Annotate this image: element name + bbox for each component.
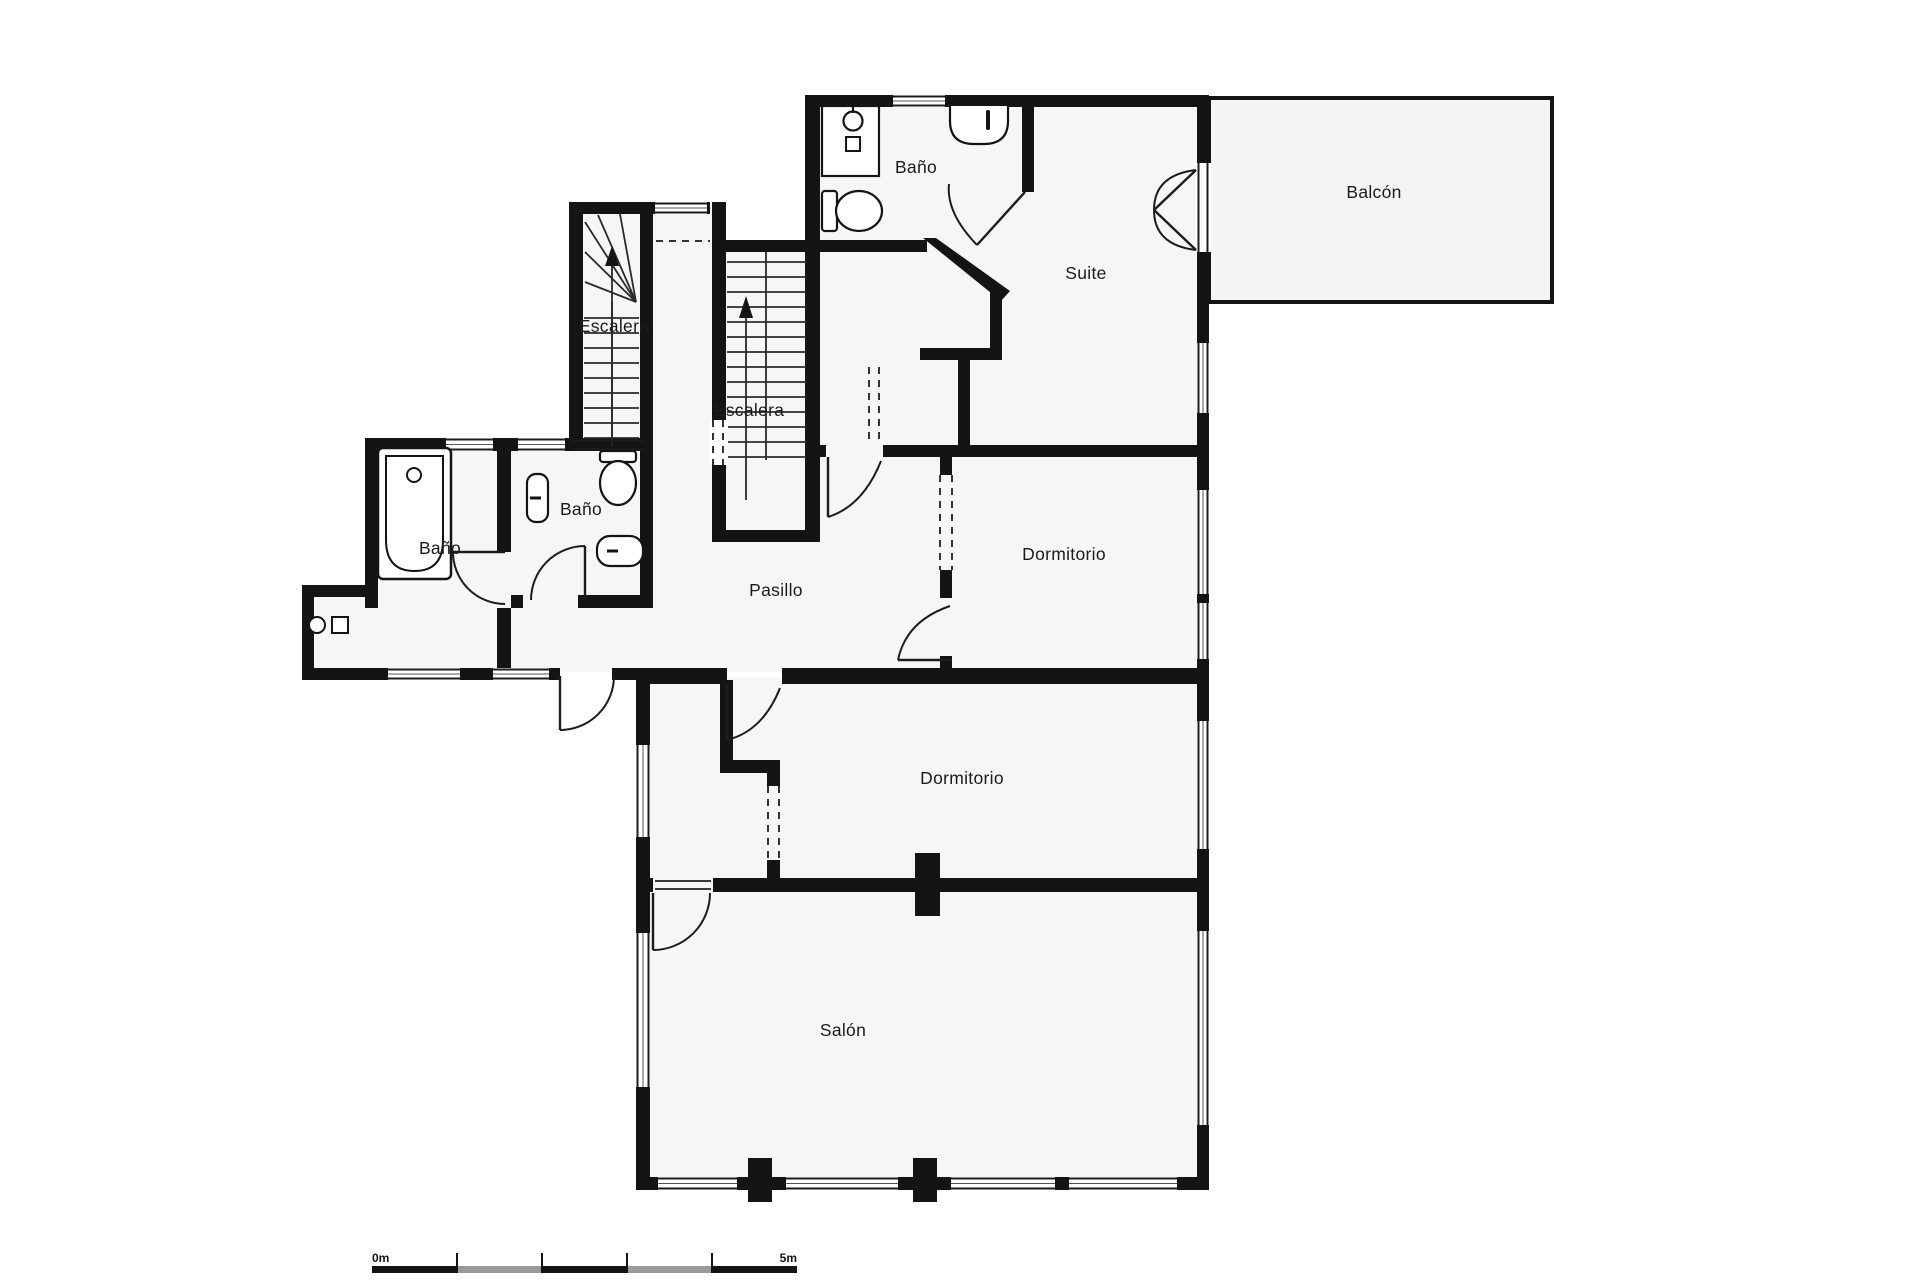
window-jamb — [460, 668, 463, 680]
sink-faucet-icon — [844, 112, 863, 131]
floor-plan-page: Baño Suite Balcón Escalera Escalera Baño… — [0, 0, 1920, 1280]
bidet-icon — [597, 536, 643, 566]
window-jamb — [1055, 1177, 1058, 1190]
wall-segment — [1022, 107, 1034, 192]
scale-zero-label: 0m — [372, 1251, 389, 1265]
room-floor — [946, 451, 1204, 678]
window-jamb — [515, 438, 518, 451]
wall-segment — [511, 595, 523, 608]
scale-segment — [627, 1266, 712, 1273]
window-jamb — [636, 837, 650, 840]
drain-square-icon — [846, 137, 860, 151]
scale-five-label: 5m — [780, 1251, 797, 1265]
toilet-tank-icon — [822, 191, 837, 231]
room-label-escalera-a: Escalera — [579, 316, 650, 336]
window-jamb — [655, 1177, 658, 1190]
window-jamb — [636, 1087, 650, 1090]
tub-drain-icon — [407, 468, 421, 482]
room-floor — [652, 215, 712, 672]
wall-segment — [712, 202, 726, 542]
wall-segment — [636, 878, 653, 892]
room-label-bano-middle: Baño — [560, 499, 602, 519]
window-jamb — [385, 668, 388, 680]
wall-segment — [920, 348, 1002, 360]
room-label-bano-top: Baño — [895, 157, 937, 177]
wall-segment — [820, 445, 826, 457]
wall-segment — [712, 530, 820, 542]
wall-segment — [365, 438, 378, 608]
wall-segment — [940, 570, 952, 598]
scale-segments — [372, 1253, 797, 1273]
wall-segment — [958, 360, 970, 450]
window-jamb — [1197, 600, 1209, 603]
wall-segment — [782, 668, 1197, 684]
wall-segment — [913, 1158, 937, 1202]
toilet-bowl-icon — [836, 191, 882, 231]
scale-tick — [456, 1253, 458, 1273]
window-jamb — [1197, 849, 1209, 852]
toilet-bowl-icon — [600, 461, 636, 505]
window-jamb — [1066, 1177, 1069, 1190]
room-label-pasillo: Pasillo — [749, 580, 803, 600]
wall-segment — [940, 457, 952, 475]
wall-segment — [569, 202, 652, 214]
room-label-escalera-b: Escalera — [714, 400, 785, 420]
floor-plan-canvas: Baño Suite Balcón Escalera Escalera Baño… — [0, 0, 1920, 1280]
room-label-dormitorio-2: Dormitorio — [920, 768, 1004, 788]
window-jamb — [636, 742, 650, 745]
window-jamb — [783, 1177, 786, 1190]
window-jamb — [1197, 594, 1209, 597]
wall-segment — [805, 95, 820, 535]
appliance-square-icon — [332, 617, 348, 633]
window-jamb — [945, 95, 948, 107]
scale-segment — [457, 1266, 542, 1273]
window-jamb — [1197, 928, 1209, 931]
room-label-balcon: Balcón — [1346, 182, 1401, 202]
wall-segment — [726, 240, 807, 252]
wall-segment — [640, 452, 653, 595]
scale-tick — [711, 1253, 713, 1273]
window-jamb — [1177, 1177, 1180, 1190]
scale-segment — [712, 1266, 797, 1273]
wall-segment — [578, 595, 653, 608]
wall-segment — [650, 668, 727, 684]
window-jamb — [1197, 1125, 1209, 1128]
window-jamb — [490, 668, 493, 680]
window-jamb — [737, 1177, 740, 1190]
door-swing-arc — [560, 676, 614, 730]
wall-segment — [805, 240, 927, 252]
wall-basin-icon — [950, 106, 1008, 144]
bathroom-tub-fixtures — [378, 448, 451, 579]
balcony-door-gap — [1195, 163, 1211, 252]
window-jamb — [1197, 659, 1209, 662]
wall-segment — [940, 656, 952, 668]
window-jamb — [948, 1177, 951, 1190]
window-jamb — [707, 202, 710, 214]
window-jamb — [549, 668, 552, 680]
wall-segment — [767, 760, 780, 786]
window-jamb — [652, 202, 655, 214]
scale-tick — [541, 1253, 543, 1273]
window-jamb — [1197, 340, 1209, 343]
boiler-circle-icon — [309, 617, 325, 633]
window-jamb — [565, 438, 568, 451]
wall-segment — [990, 291, 1002, 357]
window-jamb — [636, 930, 650, 933]
wall-segment — [497, 438, 511, 552]
room-label-salon: Salón — [820, 1020, 866, 1040]
window-jamb — [493, 438, 496, 451]
wall-segment — [748, 1158, 772, 1202]
scale-segment — [372, 1266, 457, 1273]
room-label-bano-tub: Baño — [419, 538, 461, 558]
room-label-dormitorio-1: Dormitorio — [1022, 544, 1106, 564]
window-jamb — [898, 1177, 901, 1190]
wall-segment — [713, 878, 1209, 892]
room-floor — [642, 888, 1204, 1187]
room-label-suite: Suite — [1065, 263, 1106, 283]
window-jamb — [1197, 718, 1209, 721]
scale-bar: 0m 5m — [372, 1251, 797, 1273]
window-jamb — [1197, 487, 1209, 490]
scale-tick — [626, 1253, 628, 1273]
wall-segment — [883, 445, 1197, 457]
wall-segment — [915, 853, 940, 916]
window-jamb — [890, 95, 893, 107]
window-jamb — [1197, 413, 1209, 416]
scale-segment — [542, 1266, 627, 1273]
wall-segment — [497, 608, 511, 670]
